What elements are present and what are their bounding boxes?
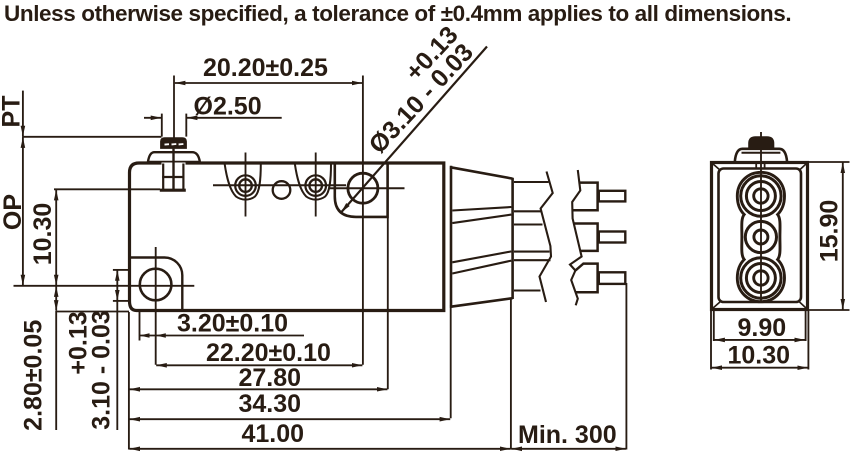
svg-text:22.20±0.10: 22.20±0.10: [206, 339, 331, 367]
svg-text:Ø2.50: Ø2.50: [194, 93, 262, 121]
svg-text:34.30: 34.30: [239, 390, 302, 418]
svg-text:Unless otherwise specified, a: Unless otherwise specified, a tolerance …: [4, 1, 791, 26]
svg-text:3.20±0.10: 3.20±0.10: [177, 310, 288, 338]
svg-text:PT: PT: [0, 96, 26, 128]
svg-text:20.20±0.25: 20.20±0.25: [203, 54, 328, 82]
svg-text:10.30: 10.30: [29, 203, 57, 266]
svg-text:3.10 - 0.03: 3.10 - 0.03: [88, 310, 116, 430]
svg-text:41.00: 41.00: [242, 420, 305, 448]
svg-text:2.80±0.05: 2.80±0.05: [20, 320, 48, 431]
svg-text:15.90: 15.90: [816, 200, 844, 263]
svg-text:10.30: 10.30: [728, 342, 791, 370]
svg-text:OP: OP: [0, 194, 27, 230]
svg-text:27.80: 27.80: [239, 364, 302, 392]
svg-text:Min. 300: Min. 300: [518, 421, 617, 449]
svg-text:9.90: 9.90: [738, 314, 787, 342]
